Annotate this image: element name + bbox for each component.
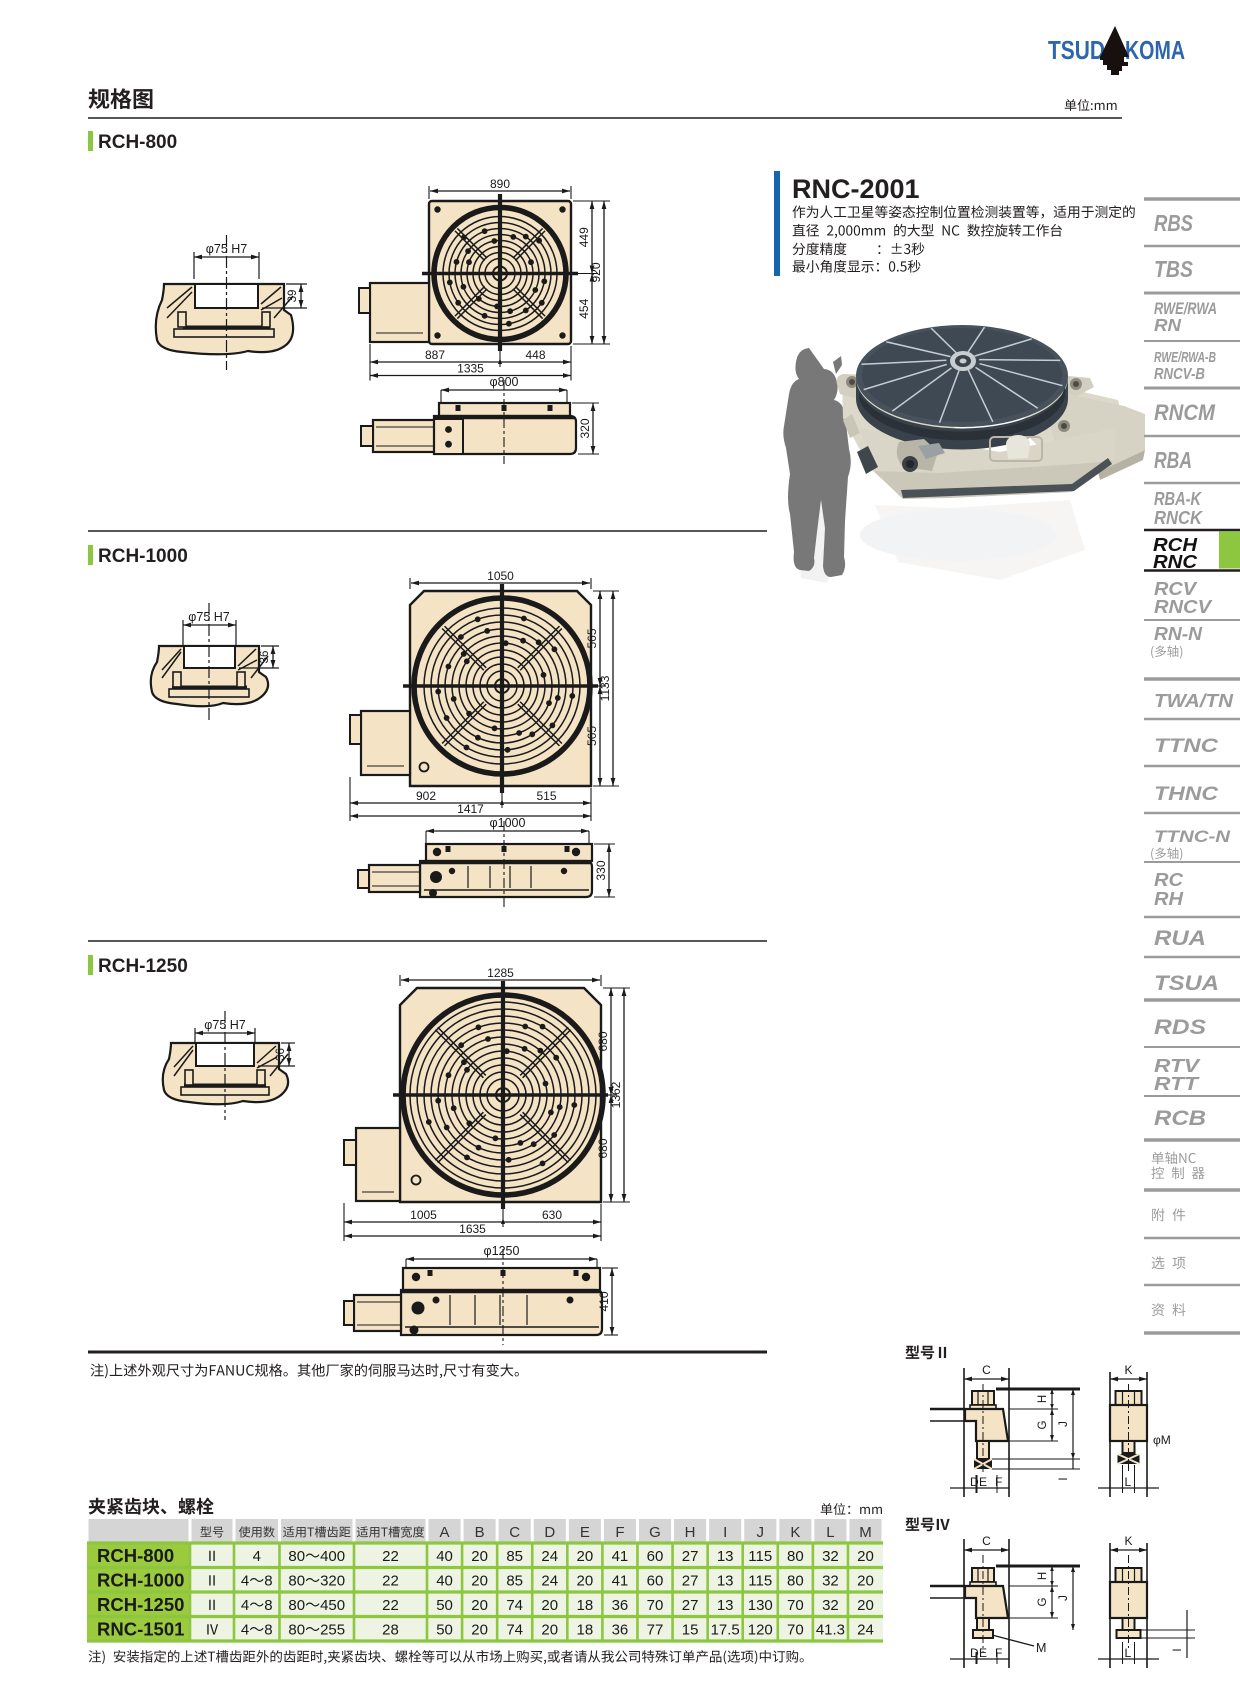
svg-text:1417: 1417 xyxy=(457,802,484,816)
svg-text:22: 22 xyxy=(382,1573,399,1590)
svg-text:454: 454 xyxy=(577,298,591,318)
svg-text:RNCK: RNCK xyxy=(1154,508,1204,528)
svg-text:24: 24 xyxy=(541,1548,558,1565)
svg-text:C: C xyxy=(982,1363,991,1377)
svg-text:20: 20 xyxy=(471,1622,488,1639)
svg-text:27: 27 xyxy=(682,1597,699,1614)
svg-text:20: 20 xyxy=(577,1573,594,1590)
svg-text:E: E xyxy=(979,1646,987,1660)
svg-text:39: 39 xyxy=(287,290,299,303)
svg-text:28: 28 xyxy=(382,1622,399,1639)
svg-text:D: D xyxy=(970,1646,979,1660)
svg-text:RCH-1250: RCH-1250 xyxy=(97,1594,184,1615)
svg-text:RTT: RTT xyxy=(1154,1073,1200,1094)
svg-text:4～8: 4～8 xyxy=(241,1573,273,1590)
svg-text:887: 887 xyxy=(425,348,445,362)
svg-text:G: G xyxy=(1037,1597,1049,1606)
svg-text:20: 20 xyxy=(541,1622,558,1639)
svg-text:TTNC: TTNC xyxy=(1154,735,1219,757)
svg-text:I: I xyxy=(1172,1648,1184,1651)
svg-text:TBS: TBS xyxy=(1154,256,1193,282)
svg-text:RNCV-B: RNCV-B xyxy=(1154,366,1205,383)
svg-text:L: L xyxy=(826,1524,834,1541)
svg-text:1005: 1005 xyxy=(410,1208,437,1222)
svg-text:13: 13 xyxy=(717,1573,734,1590)
svg-text:27: 27 xyxy=(682,1548,699,1565)
svg-text:RUA: RUA xyxy=(1154,926,1206,950)
svg-text:74: 74 xyxy=(506,1622,523,1639)
svg-text:F: F xyxy=(615,1524,624,1541)
svg-text:80: 80 xyxy=(787,1573,804,1590)
svg-text:RNCM: RNCM xyxy=(1154,400,1216,425)
svg-text:70: 70 xyxy=(787,1597,804,1614)
svg-text:18: 18 xyxy=(577,1597,594,1614)
svg-text:RNCV: RNCV xyxy=(1154,596,1213,617)
svg-text:36: 36 xyxy=(612,1597,629,1614)
svg-text:RN-N: RN-N xyxy=(1154,623,1203,644)
svg-text:TSUA: TSUA xyxy=(1154,971,1219,995)
svg-text:60: 60 xyxy=(647,1548,664,1565)
svg-text:50: 50 xyxy=(436,1597,453,1614)
svg-text:RCH-1250: RCH-1250 xyxy=(98,956,188,977)
svg-text:RBS: RBS xyxy=(1154,210,1193,236)
svg-text:RDS: RDS xyxy=(1154,1015,1207,1039)
svg-text:J: J xyxy=(757,1524,765,1541)
svg-text:680: 680 xyxy=(596,1138,610,1158)
svg-text:C: C xyxy=(982,1534,991,1548)
svg-text:22: 22 xyxy=(382,1548,399,1565)
svg-text:L: L xyxy=(1125,1475,1132,1489)
svg-text:130: 130 xyxy=(748,1597,773,1614)
svg-text:RWE/RWA-B: RWE/RWA-B xyxy=(1154,349,1216,366)
svg-text:27: 27 xyxy=(682,1573,699,1590)
svg-text:20: 20 xyxy=(541,1597,558,1614)
svg-text:C: C xyxy=(509,1524,520,1541)
svg-text:515: 515 xyxy=(536,789,556,803)
svg-text:G: G xyxy=(649,1524,661,1541)
svg-text:RCH-1000: RCH-1000 xyxy=(97,1570,184,1591)
svg-text:RH: RH xyxy=(1154,888,1184,909)
svg-text:RBA: RBA xyxy=(1154,447,1192,473)
svg-text:36: 36 xyxy=(259,651,271,664)
svg-text:80: 80 xyxy=(787,1548,804,1565)
svg-text:80～400: 80～400 xyxy=(288,1548,345,1565)
svg-text:H: H xyxy=(1037,1395,1049,1403)
svg-text:20: 20 xyxy=(471,1597,488,1614)
svg-text:20: 20 xyxy=(577,1548,594,1565)
svg-text:4～8: 4～8 xyxy=(241,1622,273,1639)
svg-text:TTNC-N: TTNC-N xyxy=(1154,827,1231,846)
svg-text:115: 115 xyxy=(748,1548,772,1565)
svg-text:18: 18 xyxy=(577,1622,594,1639)
svg-text:24: 24 xyxy=(541,1573,558,1590)
svg-text:RCH-1000: RCH-1000 xyxy=(98,546,188,567)
svg-text:17.5: 17.5 xyxy=(711,1622,740,1639)
svg-text:L: L xyxy=(1125,1646,1132,1660)
svg-text:410: 410 xyxy=(597,1291,611,1311)
svg-text:φ1250: φ1250 xyxy=(484,1244,520,1258)
svg-text:24: 24 xyxy=(857,1622,874,1639)
svg-text:J: J xyxy=(1058,1421,1070,1427)
svg-text:RCH-800: RCH-800 xyxy=(97,1545,174,1566)
svg-text:4: 4 xyxy=(253,1548,261,1565)
svg-text:φ1000: φ1000 xyxy=(490,816,526,830)
svg-text:36: 36 xyxy=(612,1622,629,1639)
svg-text:KOMA: KOMA xyxy=(1125,35,1185,65)
svg-text:32: 32 xyxy=(822,1548,839,1565)
svg-text:M: M xyxy=(859,1524,872,1541)
svg-text:320: 320 xyxy=(578,418,592,438)
svg-text:13: 13 xyxy=(717,1597,734,1614)
svg-text:20: 20 xyxy=(471,1573,488,1590)
svg-text:36: 36 xyxy=(275,1048,287,1061)
svg-text:115: 115 xyxy=(748,1573,772,1590)
svg-text:41.3: 41.3 xyxy=(816,1622,845,1639)
svg-text:H: H xyxy=(685,1524,696,1541)
svg-text:20: 20 xyxy=(857,1573,874,1590)
svg-text:K: K xyxy=(1124,1534,1132,1548)
svg-text:F: F xyxy=(995,1646,1002,1660)
svg-text:80～450: 80～450 xyxy=(288,1597,345,1614)
svg-text:20: 20 xyxy=(857,1597,874,1614)
svg-text:RNC-1501: RNC-1501 xyxy=(97,1619,184,1640)
svg-text:85: 85 xyxy=(506,1548,523,1565)
svg-text:D: D xyxy=(544,1524,555,1541)
svg-text:RNC: RNC xyxy=(1153,551,1198,572)
svg-text:E: E xyxy=(979,1475,987,1489)
svg-text:RBA-K: RBA-K xyxy=(1154,489,1203,509)
svg-text:449: 449 xyxy=(577,227,591,247)
svg-text:F: F xyxy=(995,1475,1002,1489)
svg-text:1335: 1335 xyxy=(457,362,484,376)
svg-text:630: 630 xyxy=(542,1208,562,1222)
svg-text:1050: 1050 xyxy=(487,569,514,583)
svg-text:40: 40 xyxy=(436,1548,453,1565)
svg-text:RC: RC xyxy=(1154,869,1184,890)
svg-text:1133: 1133 xyxy=(598,675,612,701)
svg-text:70: 70 xyxy=(787,1622,804,1639)
svg-text:I: I xyxy=(723,1524,727,1541)
svg-text:41: 41 xyxy=(612,1573,629,1590)
svg-text:565: 565 xyxy=(585,726,599,746)
svg-text:15: 15 xyxy=(682,1622,699,1639)
svg-text:13: 13 xyxy=(717,1548,734,1565)
svg-text:680: 680 xyxy=(596,1031,610,1051)
svg-text:20: 20 xyxy=(857,1548,874,1565)
svg-text:890: 890 xyxy=(490,177,510,191)
svg-text:902: 902 xyxy=(416,789,436,803)
svg-text:RCB: RCB xyxy=(1154,1106,1206,1130)
svg-text:RN: RN xyxy=(1154,315,1181,335)
svg-text:G: G xyxy=(1037,1420,1049,1429)
svg-text:M: M xyxy=(1036,1641,1046,1655)
svg-text:H: H xyxy=(1037,1572,1049,1580)
svg-text:74: 74 xyxy=(506,1597,523,1614)
svg-text:D: D xyxy=(970,1475,979,1489)
svg-text:50: 50 xyxy=(436,1622,453,1639)
svg-text:TSUD: TSUD xyxy=(1048,35,1105,65)
svg-text:THNC: THNC xyxy=(1154,783,1219,805)
svg-text:85: 85 xyxy=(506,1573,523,1590)
svg-text:32: 32 xyxy=(822,1573,839,1590)
svg-text:RNC-2001: RNC-2001 xyxy=(792,174,920,204)
svg-text:K: K xyxy=(1124,1363,1132,1377)
svg-text:E: E xyxy=(580,1524,590,1541)
svg-text:77: 77 xyxy=(647,1622,664,1639)
svg-text:41: 41 xyxy=(612,1548,629,1565)
svg-text:1635: 1635 xyxy=(459,1222,486,1236)
svg-text:70: 70 xyxy=(647,1597,664,1614)
svg-text:565: 565 xyxy=(585,628,599,648)
svg-text:TWA/TN: TWA/TN xyxy=(1154,691,1234,711)
svg-text:RCH-800: RCH-800 xyxy=(98,132,177,153)
svg-text:4～8: 4～8 xyxy=(241,1597,273,1614)
svg-text:1362: 1362 xyxy=(609,1081,623,1108)
svg-text:K: K xyxy=(790,1524,800,1541)
svg-text:120: 120 xyxy=(748,1622,773,1639)
svg-text:32: 32 xyxy=(822,1597,839,1614)
svg-text:B: B xyxy=(475,1524,485,1541)
svg-text:40: 40 xyxy=(436,1573,453,1590)
svg-text:1285: 1285 xyxy=(487,966,514,980)
svg-text:80～255: 80～255 xyxy=(288,1622,345,1639)
svg-text:330: 330 xyxy=(594,860,608,880)
svg-text:22: 22 xyxy=(382,1597,399,1614)
svg-text:φM: φM xyxy=(1153,1433,1171,1447)
svg-text:448: 448 xyxy=(525,348,545,362)
svg-text:920: 920 xyxy=(589,262,603,282)
svg-text:80～320: 80～320 xyxy=(288,1573,345,1590)
svg-text:J: J xyxy=(1058,1595,1070,1601)
svg-text:I: I xyxy=(1058,1477,1070,1480)
svg-text:60: 60 xyxy=(647,1573,664,1590)
svg-text:20: 20 xyxy=(471,1548,488,1565)
svg-text:A: A xyxy=(440,1524,450,1541)
